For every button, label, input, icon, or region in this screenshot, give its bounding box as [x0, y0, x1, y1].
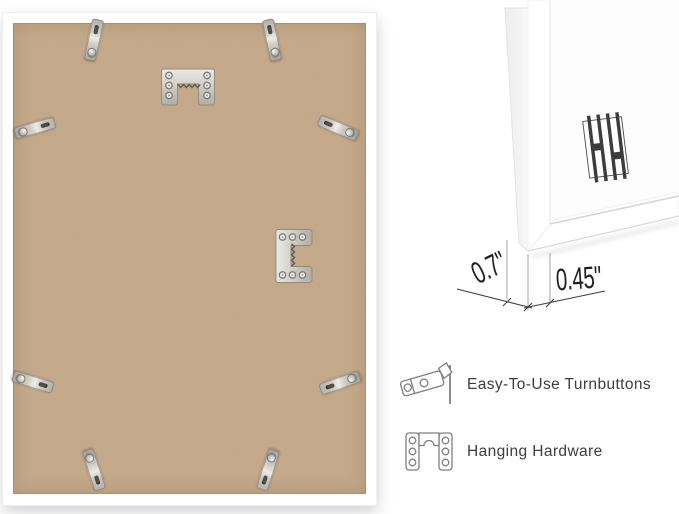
face-dimension-label: 0.45": [555, 260, 600, 299]
artwork-area: [550, 0, 679, 224]
mdf-texture: [14, 24, 365, 493]
dimension-line-depth: [457, 289, 532, 308]
feature-label: Easy-To-Use Turnbuttons: [467, 376, 651, 394]
frame-side-face: [505, 8, 528, 251]
frame-back-photo: [2, 12, 377, 506]
hanging-hardware-icon: [404, 430, 454, 474]
mdf-board: [13, 23, 366, 494]
turnbutton-icon: [398, 361, 456, 406]
feature-label: Hanging Hardware: [467, 443, 603, 461]
product-image: 0.7" 0.45" Easy-To-Use Turnbuttons: [0, 0, 679, 514]
